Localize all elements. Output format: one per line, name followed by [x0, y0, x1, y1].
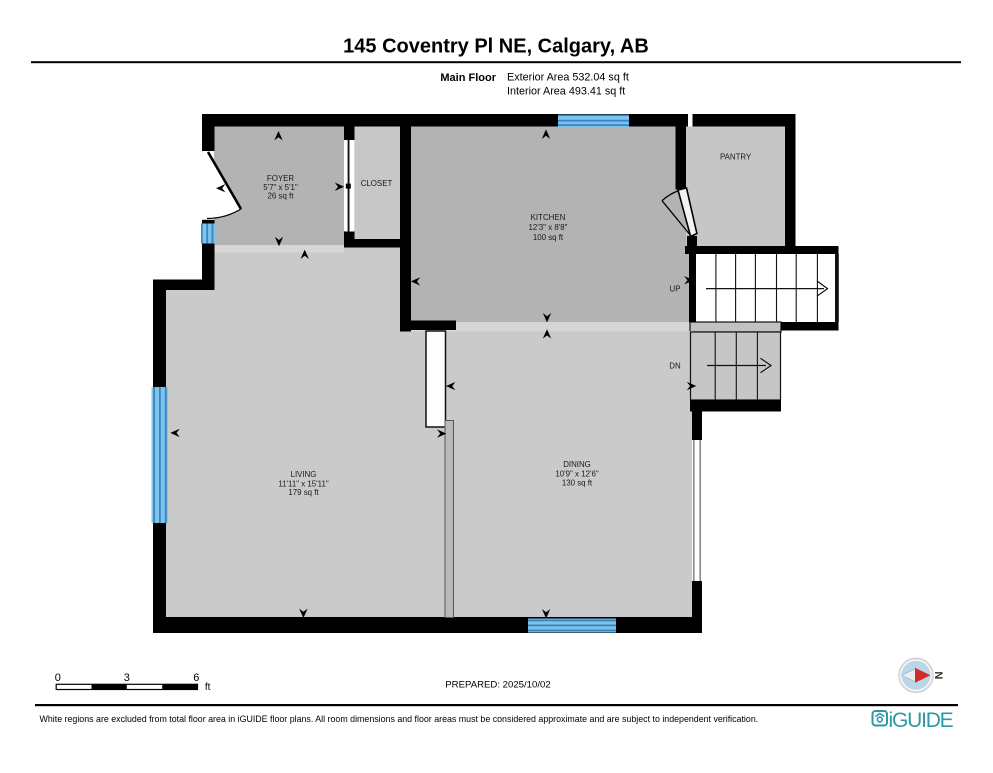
- svg-text:145 Coventry Pl NE, Calgary, A: 145 Coventry Pl NE, Calgary, AB: [343, 36, 649, 58]
- svg-text:DINING: DINING: [563, 460, 591, 469]
- svg-text:6: 6: [193, 672, 199, 684]
- svg-text:ft: ft: [205, 682, 211, 693]
- svg-text:130 sq ft: 130 sq ft: [562, 478, 593, 487]
- svg-text:DN: DN: [669, 362, 681, 371]
- svg-text:100 sq ft: 100 sq ft: [533, 233, 564, 242]
- svg-text:N: N: [932, 671, 944, 679]
- svg-text:UP: UP: [670, 285, 681, 294]
- svg-text:3: 3: [124, 672, 130, 684]
- svg-text:KITCHEN: KITCHEN: [531, 213, 566, 222]
- svg-text:PANTRY: PANTRY: [720, 153, 752, 162]
- svg-text:Interior Area 493.41 sq ft: Interior Area 493.41 sq ft: [507, 86, 625, 98]
- svg-text:Exterior Area 532.04 sq ft: Exterior Area 532.04 sq ft: [507, 72, 629, 84]
- svg-text:179 sq ft: 179 sq ft: [288, 488, 319, 497]
- svg-text:26 sq ft: 26 sq ft: [268, 192, 295, 201]
- svg-text:White regions are excluded fro: White regions are excluded from total fl…: [40, 714, 759, 724]
- svg-text:0: 0: [55, 672, 61, 684]
- svg-text:LIVING: LIVING: [291, 470, 317, 479]
- svg-text:Main Floor: Main Floor: [440, 72, 496, 84]
- svg-text:iGUIDE: iGUIDE: [889, 709, 954, 732]
- svg-text:12'3" x 8'8": 12'3" x 8'8": [529, 223, 568, 232]
- svg-text:11'11" x 15'11": 11'11" x 15'11": [278, 479, 328, 488]
- svg-text:PREPARED: 2025/10/02: PREPARED: 2025/10/02: [445, 680, 550, 691]
- svg-text:FOYER: FOYER: [267, 174, 294, 183]
- svg-text:CLOSET: CLOSET: [361, 179, 393, 188]
- svg-text:10'9" x 12'6": 10'9" x 12'6": [555, 469, 598, 478]
